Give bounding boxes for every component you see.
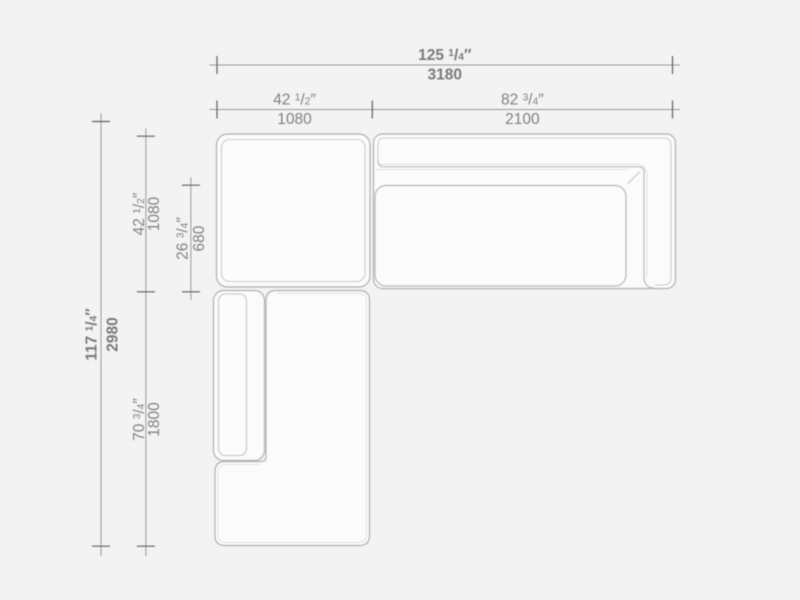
svg-text:680: 680 <box>191 225 208 251</box>
svg-text:3180: 3180 <box>428 67 462 84</box>
svg-text:1080: 1080 <box>146 196 163 231</box>
svg-text:117 1/4″: 117 1/4″ <box>84 308 101 361</box>
svg-text:2980: 2980 <box>105 317 122 351</box>
svg-text:125 1/4″: 125 1/4″ <box>418 47 472 64</box>
svg-text:1080: 1080 <box>277 111 312 128</box>
svg-text:2100: 2100 <box>505 111 540 128</box>
svg-text:1800: 1800 <box>146 402 163 437</box>
